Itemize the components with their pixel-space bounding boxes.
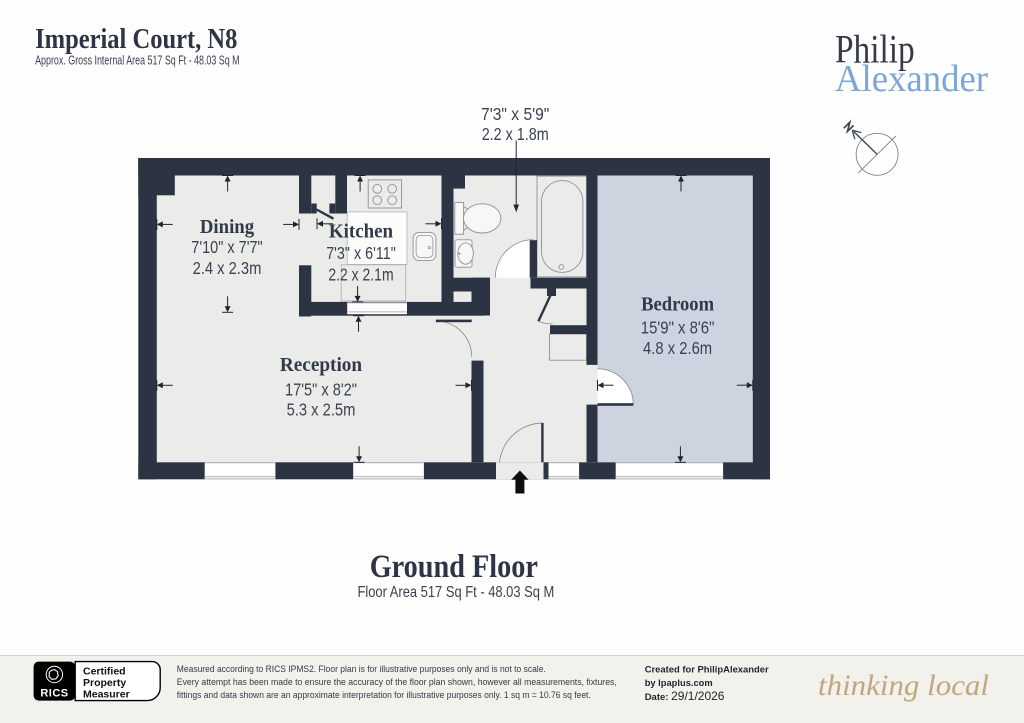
svg-text:4.8 x 2.6m: 4.8 x 2.6m	[643, 338, 712, 358]
svg-text:Measurer: Measurer	[83, 689, 130, 701]
svg-text:fittings and data shown are an: fittings and data shown are an approxima…	[177, 690, 591, 700]
svg-text:5.3 x 2.5m: 5.3 x 2.5m	[287, 400, 356, 420]
svg-text:by lpaplus.com: by lpaplus.com	[645, 678, 713, 689]
svg-text:Created for PhilipAlexander: Created for PhilipAlexander	[645, 665, 769, 676]
svg-text:2.2 x 2.1m: 2.2 x 2.1m	[328, 265, 393, 285]
svg-text:Every attempt has been made to: Every attempt has been made to ensure th…	[177, 677, 617, 687]
svg-text:Bedroom: Bedroom	[641, 293, 714, 315]
svg-text:Certified: Certified	[83, 666, 126, 678]
svg-text:17'5" x 8'2": 17'5" x 8'2"	[285, 380, 357, 400]
svg-text:Property: Property	[83, 677, 126, 689]
svg-text:7'3" x 6'11": 7'3" x 6'11"	[326, 243, 396, 263]
svg-text:2.2 x 1.8m: 2.2 x 1.8m	[482, 124, 549, 144]
svg-text:7'3" x 5'9": 7'3" x 5'9"	[481, 104, 549, 124]
svg-text:thinking local: thinking local	[818, 669, 989, 702]
svg-text:RICS: RICS	[40, 688, 68, 700]
svg-text:Imperial Court, N8: Imperial Court, N8	[35, 24, 237, 55]
svg-text:2.4 x 2.3m: 2.4 x 2.3m	[193, 258, 262, 278]
svg-text:Kitchen: Kitchen	[329, 221, 394, 243]
svg-text:15'9" x 8'6": 15'9" x 8'6"	[641, 318, 715, 338]
svg-text:Measured according to RICS IPM: Measured according to RICS IPMS2. Floor …	[177, 664, 546, 674]
svg-text:Reception: Reception	[280, 354, 363, 376]
svg-text:Approx. Gross Internal Area 51: Approx. Gross Internal Area 517 Sq Ft - …	[35, 54, 240, 68]
svg-text:Dining: Dining	[200, 216, 255, 238]
svg-text:7'10" x 7'7": 7'10" x 7'7"	[191, 237, 262, 257]
svg-text:Date: 29/1/2026: Date: 29/1/2026	[645, 689, 725, 703]
svg-text:Alexander: Alexander	[835, 58, 988, 100]
svg-text:Ground Floor: Ground Floor	[370, 549, 538, 585]
svg-text:Floor Area 517 Sq Ft - 48.03 S: Floor Area 517 Sq Ft - 48.03 Sq M	[357, 584, 554, 601]
